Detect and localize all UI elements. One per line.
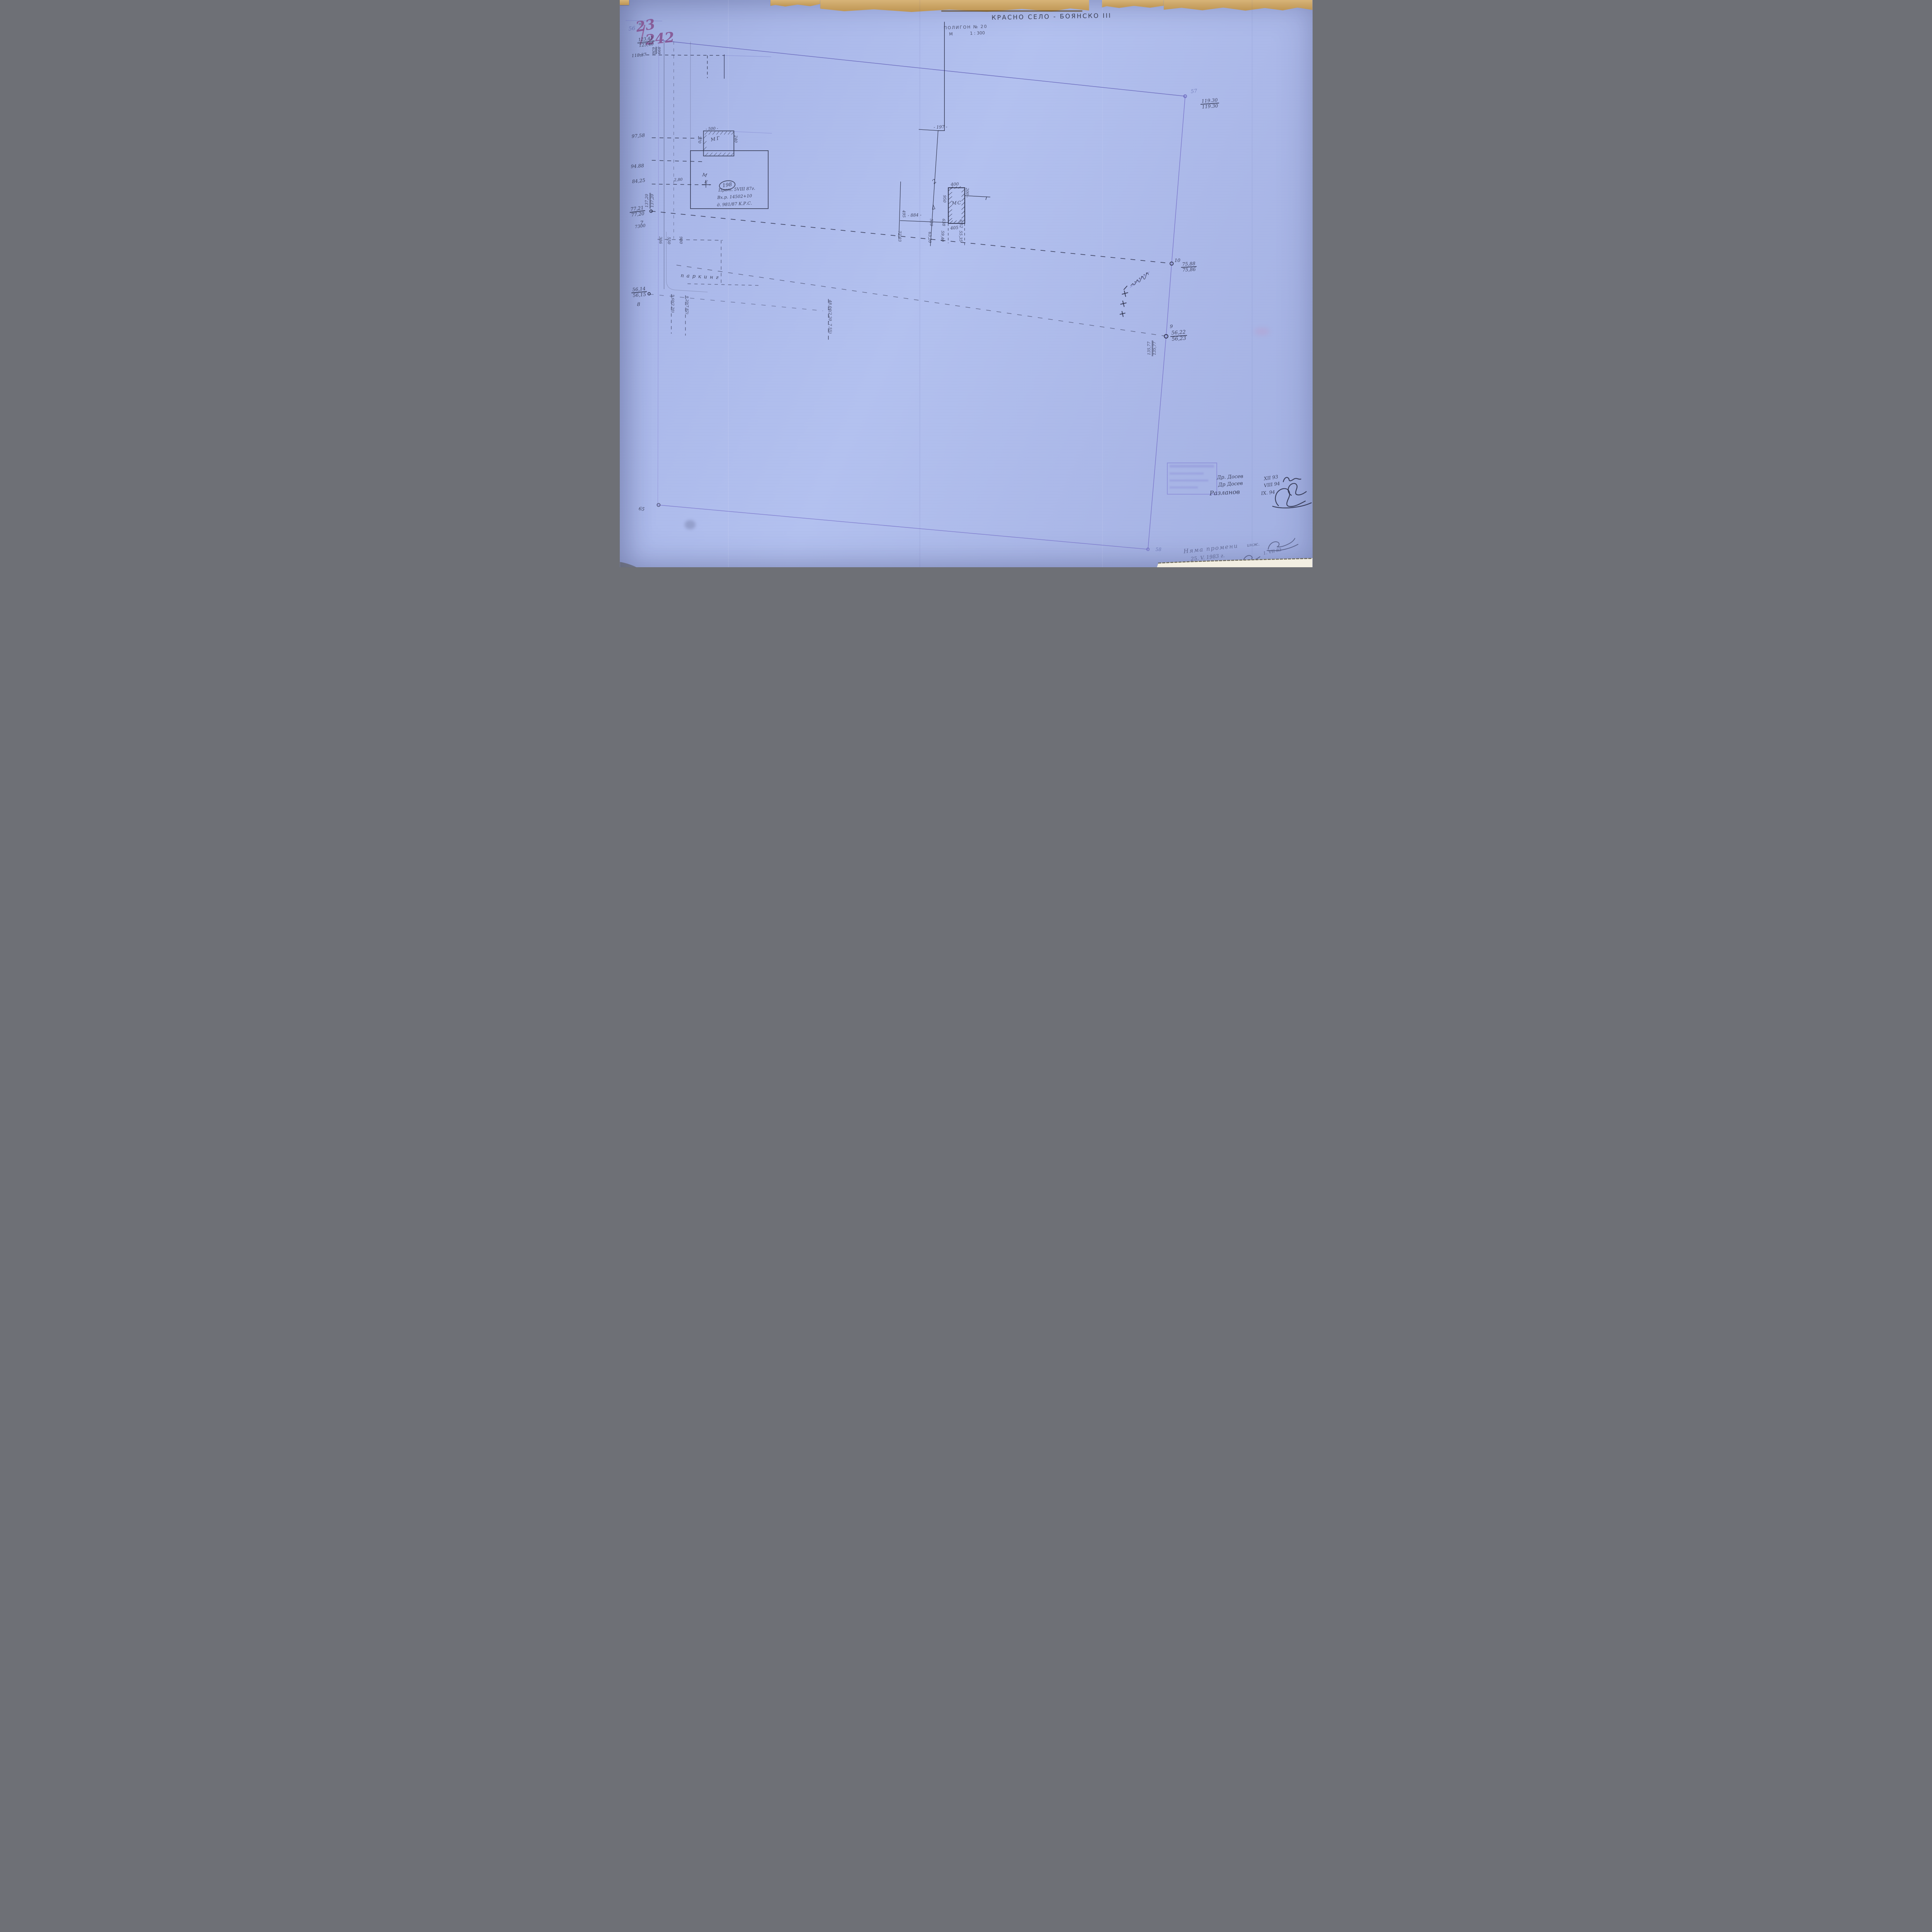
stamp-row [1170,465,1214,468]
street-lines [664,41,707,292]
point9-number: 9 [1170,324,1173,329]
offset-4804: 48,04(2.20, 7.55) [828,300,832,333]
garage-right-dim: 240 [733,135,738,143]
cross-marks [1120,273,1146,316]
point9-old: 56,23 [1170,336,1187,342]
offset-336: 336 [658,236,662,244]
garage-width: - 500 - [706,126,718,131]
col3-chain: 59,40 [940,231,944,242]
col2-chain: 63,20 [927,232,932,243]
point57-values: 119.30 119.30 [1200,98,1219,109]
scale-letter: М [949,32,953,37]
point65-number: 65 [638,506,645,512]
col1-chain: 72,03 [897,231,901,242]
point9-chainage: 135,77 135,77 [1148,340,1157,356]
elevation-fraction-nw: 123,42 123,40 [637,36,655,48]
stamp-row [1170,473,1204,474]
sheet-number: 56 [628,25,636,32]
ms-bottom-dim: 405 [950,225,959,231]
torn-paper-edge [1157,558,1312,567]
level-9758: 97,58 [631,133,645,139]
offset-899: 899 [656,47,661,54]
chainage-13720-bottom: 137,20 [650,193,655,209]
nw-dimension-lines [639,54,771,78]
chainage-13720-top: 137,20 [645,193,651,209]
offset-550: 550 [667,237,671,244]
offset-980: 980 [679,236,683,244]
point10-number: 10 [1175,258,1180,263]
ms-label: МС [952,200,962,206]
signoff-row3-name: Разланов [1209,488,1240,497]
point10-old: 75,86 [1181,267,1197,272]
chainage-13720: 137,20 137,20 [645,193,655,209]
point7-values: 77,21 77,20 [629,205,646,218]
mark-m: М [702,172,707,178]
col4-chain: 55,35 [958,231,963,242]
mark-e: Е [704,179,707,185]
point8-values: 56,14 56,15 [631,286,648,298]
offset-560-220: 5,60(2,20) [670,294,674,313]
point58-number: 58 [1156,547,1162,552]
ms-left-dim: 950 [942,195,946,202]
offset-636: 636 [651,47,655,54]
ms-top-dim: 400 [951,182,959,187]
col1-offset: 495 [901,210,906,218]
survey-point-markers [648,95,1186,551]
garage-left-dim: 270 [697,136,701,143]
survey-sheet: 56 23 242 123,42 123,40 118,37 636 899 К… [620,0,1313,567]
point57-number: 57 [1190,88,1197,95]
dim-197: - 197 - [934,124,947,130]
stamp-row [1170,486,1198,488]
building-outlines [652,131,772,209]
col3-offset: 638 [941,219,946,226]
point9-chainage-top: 135,77 [1148,340,1153,356]
scale-value: 1 : 300 [970,31,985,36]
col2-offset: 520 [929,219,933,226]
ms-right-dim: 200 - [965,188,969,198]
offset-920-782: 9,20(7,82) [685,296,689,314]
dashed-survey-lines [649,211,1170,340]
utility-line [899,22,948,246]
point8-number: 8 [637,302,640,308]
point9-values: 56,22 56,23 [1170,330,1187,342]
dim-280: 2,80 [674,177,683,182]
point10-values: 75,88 75,86 [1181,261,1197,272]
level-9488: 94.88 [631,163,644,169]
polygon-boundary [658,41,1185,549]
stamp-row [1170,480,1209,481]
dim-884: - 884 - [908,213,922,218]
point9-chainage-bottom: 135,77 [1153,340,1157,356]
col4-offset: 6,52 [959,219,963,228]
